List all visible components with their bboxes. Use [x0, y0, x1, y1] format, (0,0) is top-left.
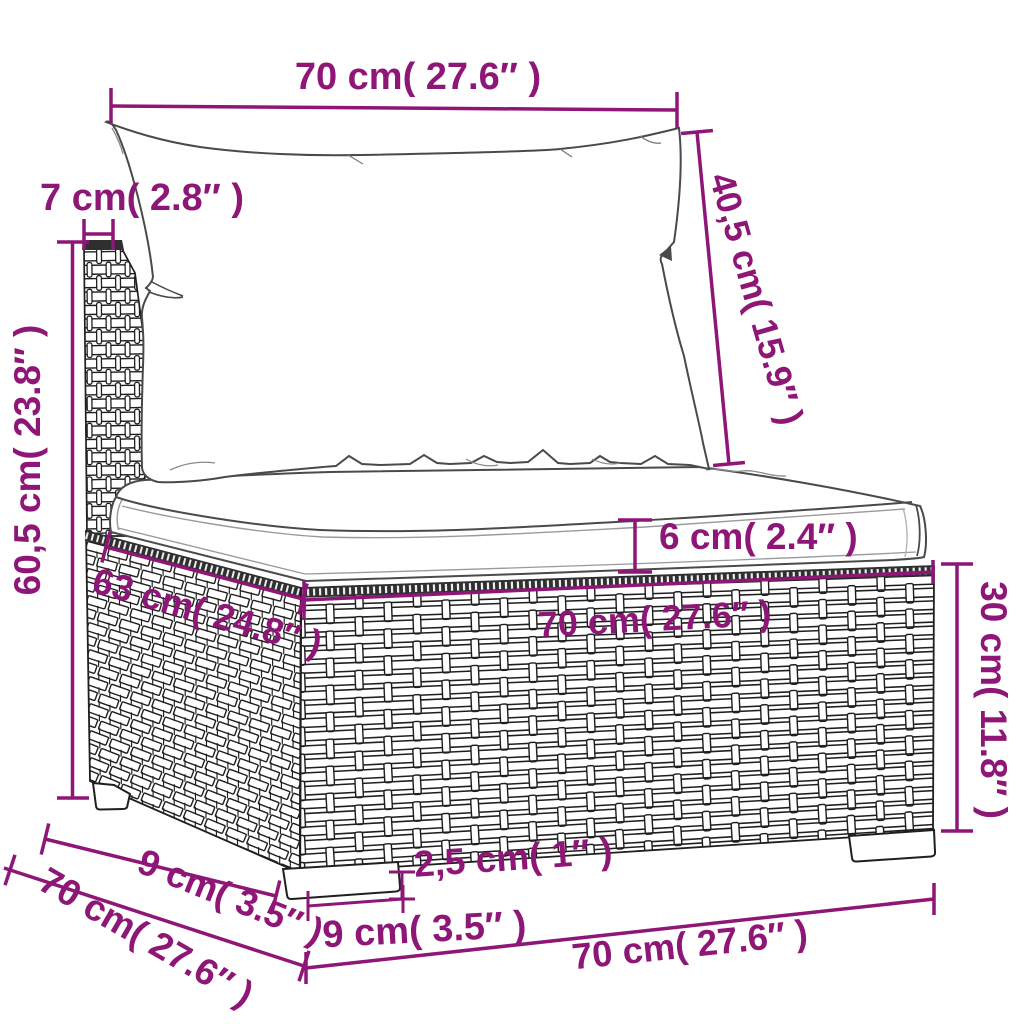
svg-text:6 cm( 2.4″ ): 6 cm( 2.4″ )	[659, 516, 858, 557]
svg-text:60,5 cm( 23.8″ ): 60,5 cm( 23.8″ )	[7, 325, 48, 596]
svg-text:7 cm( 2.8″ ): 7 cm( 2.8″ )	[40, 177, 244, 219]
svg-text:70 cm( 27.6″ ): 70 cm( 27.6″ )	[295, 56, 541, 98]
svg-text:30 cm( 11.8″ ): 30 cm( 11.8″ )	[973, 581, 1014, 819]
